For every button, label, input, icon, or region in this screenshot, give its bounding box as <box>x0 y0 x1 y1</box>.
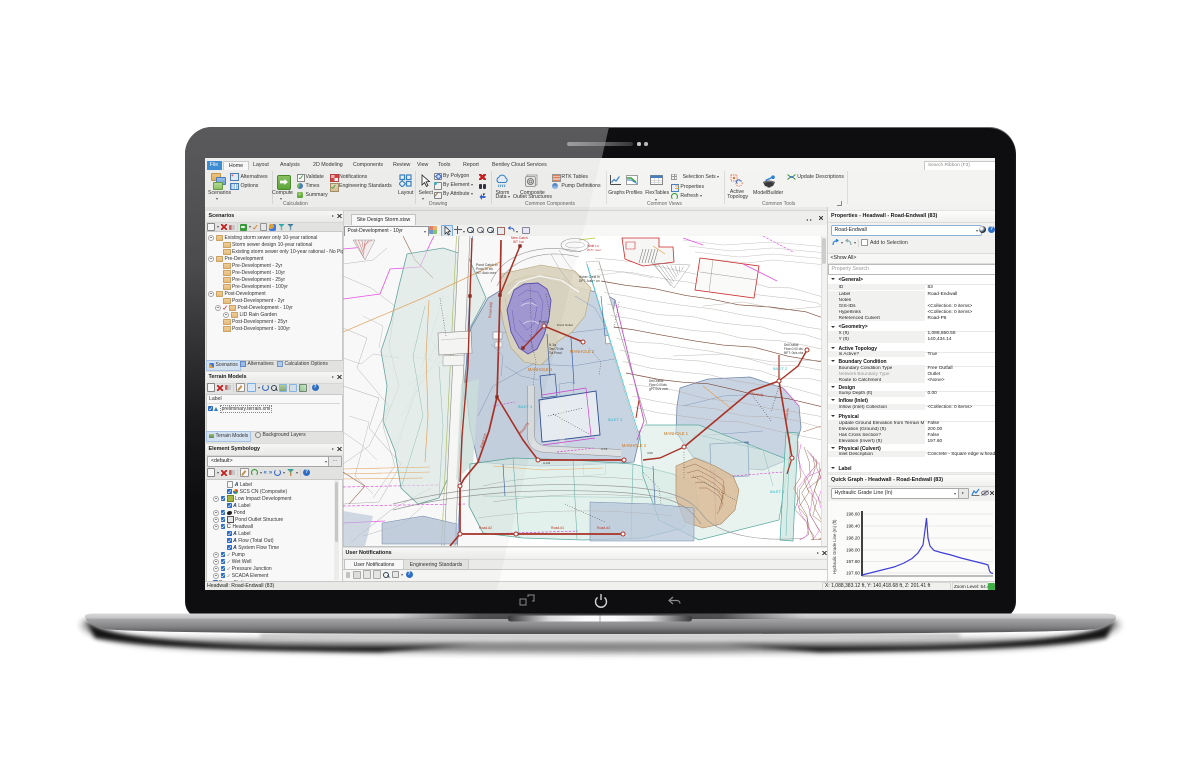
svg-text:4.06: 4.06 <box>647 451 653 455</box>
svg-text:INLET 3: INLET 3 <box>607 417 622 422</box>
svg-text:Hydraulic Grade Line (In) (ft): Hydraulic Grade Line (In) (ft) <box>832 519 837 574</box>
svg-text:W-Tl: over: W-Tl: over <box>587 248 601 252</box>
svg-text:Road-#2: Road-#2 <box>479 526 492 530</box>
svg-text:198.20: 198.20 <box>846 536 860 541</box>
svg-text:A-16: A-16 <box>601 447 608 451</box>
svg-text:MANHOLE 3: MANHOLE 3 <box>569 349 594 354</box>
svg-text:197.60: 197.60 <box>846 571 860 576</box>
svg-text:BPT: 0s/s cbs: BPT: 0s/s cbs <box>784 351 804 355</box>
svg-text:INLET 2: INLET 2 <box>772 366 787 371</box>
svg-text:Road-#1: Road-#1 <box>551 526 564 530</box>
svg-text:WT: Auto over: WT: Auto over <box>476 271 497 275</box>
svg-text:Pond Outlet: Pond Outlet <box>557 323 573 327</box>
svg-text:DPT: Auto+ on: DPT: Auto+ on <box>579 279 600 283</box>
svg-text:INLET 1: INLET 1 <box>769 489 784 494</box>
svg-text:198.40: 198.40 <box>846 524 860 529</box>
svg-text:gPT:0s/s over: gPT:0s/s over <box>649 387 669 391</box>
svg-text:Tot Pond: Tot Pond <box>549 351 562 355</box>
svg-text:Road-#3: Road-#3 <box>597 526 610 530</box>
svg-text:WT I on: WT I on <box>513 240 524 244</box>
svg-text:MANHOLE 1: MANHOLE 1 <box>663 431 688 436</box>
svg-text:Pond 3: Pond 3 <box>539 320 549 324</box>
svg-text:198.00: 198.00 <box>846 548 860 553</box>
svg-text:197.80: 197.80 <box>846 559 860 564</box>
svg-text:MANHOLE 4: MANHOLE 4 <box>527 367 552 372</box>
svg-text:MANHOLE 2: MANHOLE 2 <box>621 443 646 448</box>
svg-text:INLET 4: INLET 4 <box>517 404 532 409</box>
svg-text:A-1M: A-1M <box>543 461 551 465</box>
svg-text:198.60: 198.60 <box>846 512 860 517</box>
